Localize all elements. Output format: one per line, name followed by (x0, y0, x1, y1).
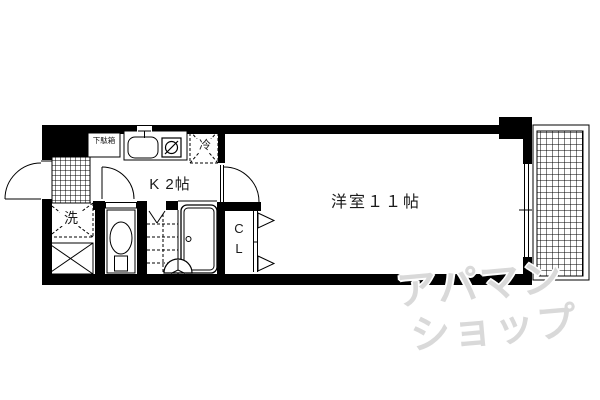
washing-machine-label: 洗 (60, 211, 82, 226)
closet-door-arrow-icon (258, 213, 274, 228)
closet-label-c: C (234, 219, 243, 239)
toilet (107, 210, 135, 273)
genkan-tile (52, 157, 90, 203)
closet-door-arrow-icon (258, 256, 274, 271)
toilet-door (106, 203, 137, 209)
sliding-window (519, 163, 532, 258)
floorplan: 下駄箱 冷 K 2帖 洗 洋室１１帖 C L アパマン ショップ (0, 0, 600, 400)
kitchen-door (102, 167, 134, 199)
kitchen-counter (124, 126, 187, 160)
entrance-door (5, 161, 52, 199)
pipe-space (48, 243, 93, 274)
room-door (221, 165, 260, 202)
closet-label: C L (226, 219, 252, 259)
closet-label-l: L (235, 239, 242, 259)
closet-doors (253, 211, 274, 272)
shoe-cabinet-label: 下駄箱 (88, 135, 120, 146)
kitchen-label: K 2帖 (138, 173, 202, 194)
western-room-label: 洋室１１帖 (308, 188, 444, 212)
refrigerator-label: 冷 (196, 139, 214, 152)
